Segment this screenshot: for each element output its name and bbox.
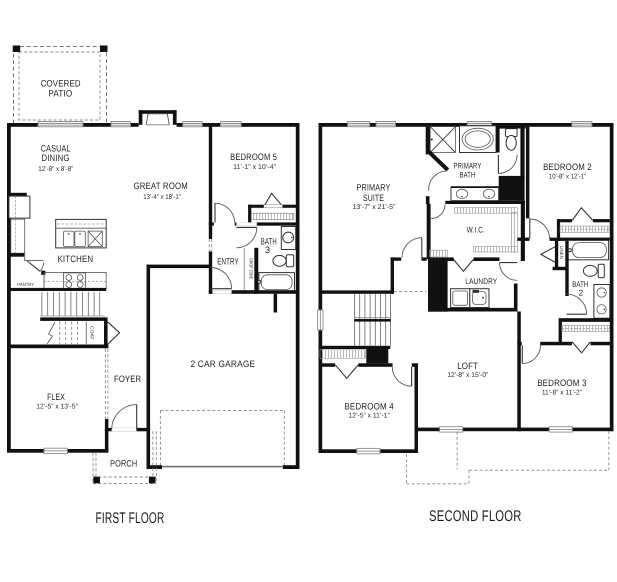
svg-text:12’-8” x 15’-0”: 12’-8” x 15’-0”: [447, 372, 489, 379]
svg-text:PRIMARY: PRIMARY: [454, 162, 482, 171]
svg-text:10’-8” x 12’-1”: 10’-8” x 12’-1”: [549, 174, 587, 181]
svg-text:12’-5” x 13’-5”: 12’-5” x 13’-5”: [36, 404, 78, 411]
svg-text:11’-8” x 11’-2”: 11’-8” x 11’-2”: [542, 389, 583, 396]
svg-text:COVERED: COVERED: [41, 78, 81, 88]
svg-text:3: 3: [265, 245, 270, 255]
svg-text:PATIO: PATIO: [48, 89, 72, 99]
svg-text:FOYER: FOYER: [114, 374, 141, 384]
svg-text:2: 2: [579, 289, 584, 298]
svg-text:GREAT ROOM: GREAT ROOM: [133, 181, 188, 191]
svg-text:SECOND FLOOR: SECOND FLOOR: [429, 508, 522, 525]
svg-text:BEDROOM 2: BEDROOM 2: [543, 162, 592, 172]
svg-text:PORCH: PORCH: [110, 458, 137, 468]
svg-text:12’-8” x 8’-8”: 12’-8” x 8’-8”: [38, 166, 74, 173]
svg-text:11’-1” x 10’-4”: 11’-1” x 10’-4”: [233, 164, 277, 171]
svg-text:2 CAR GARAGE: 2 CAR GARAGE: [190, 359, 255, 369]
svg-text:12’-5” x 11’-1”: 12’-5” x 11’-1”: [349, 412, 391, 419]
svg-text:ENTRY: ENTRY: [217, 257, 239, 267]
svg-text:13’-4” x 18’-1”: 13’-4” x 18’-1”: [143, 194, 181, 201]
svg-text:DINING: DINING: [42, 153, 70, 163]
svg-text:CASUAL: CASUAL: [41, 143, 71, 153]
svg-text:SUITE: SUITE: [363, 193, 384, 203]
svg-text:KITCHEN: KITCHEN: [58, 254, 94, 264]
svg-text:LINEN: LINEN: [559, 246, 564, 259]
svg-text:DROP ZONE: DROP ZONE: [248, 258, 253, 279]
svg-text:W.I.C.: W.I.C.: [467, 226, 485, 235]
svg-text:LAUNDRY: LAUNDRY: [465, 277, 497, 286]
svg-text:BEDROOM 5: BEDROOM 5: [230, 152, 277, 162]
svg-text:PANTRY: PANTRY: [17, 282, 34, 287]
svg-text:13’-7” x 21’-5”: 13’-7” x 21’-5”: [353, 204, 397, 211]
svg-text:LOFT: LOFT: [457, 361, 478, 371]
svg-text:FIRST FLOOR: FIRST FLOOR: [96, 510, 165, 527]
svg-text:FLEX: FLEX: [47, 392, 65, 402]
svg-text:PRIMARY: PRIMARY: [357, 183, 391, 193]
svg-text:BATH: BATH: [460, 170, 476, 179]
svg-text:BEDROOM 4: BEDROOM 4: [344, 401, 394, 411]
svg-text:COAT: COAT: [90, 326, 95, 340]
svg-text:BEDROOM 3: BEDROOM 3: [537, 378, 586, 388]
